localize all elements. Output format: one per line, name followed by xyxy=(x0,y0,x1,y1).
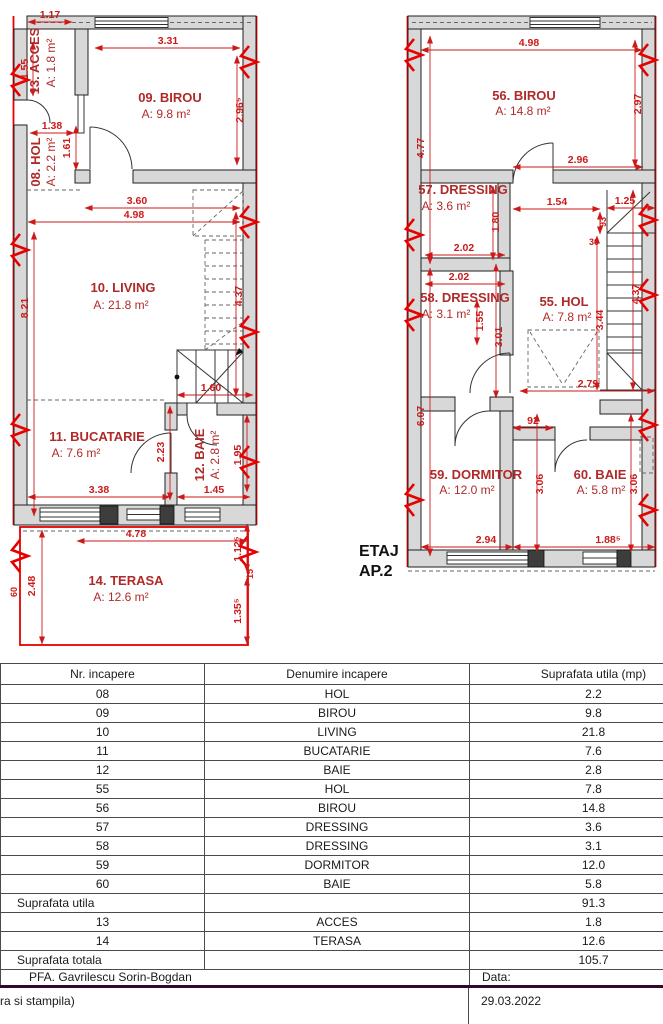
dim-label: 2.02 xyxy=(454,242,475,254)
room-area: A: 5.8 m² xyxy=(577,483,626,497)
dim-label: 1.17 xyxy=(40,9,61,21)
room-area: A: 2.2 m² xyxy=(44,138,58,187)
dim-label: 1.60 xyxy=(201,382,222,394)
room-name: 10. LIVING xyxy=(90,280,155,295)
table-cell: BUCATARIE xyxy=(205,742,470,760)
table-row: Suprafata totala105.7 xyxy=(1,950,663,969)
table-cell: 14 xyxy=(1,932,205,950)
dimension: 2.79 xyxy=(520,378,655,391)
dim-label: 3.06 xyxy=(534,474,546,495)
dimension: 3.60 xyxy=(85,195,240,208)
room-name: 59. DORMITOR xyxy=(430,467,523,482)
dim-label: 30 xyxy=(589,237,599,247)
floor-plans-drawing: ETAJ AP.2 1.171.551.381.613.312.96⁵3.604… xyxy=(0,0,663,660)
table-cell: 13 xyxy=(1,913,205,931)
table-cell: 5.8 xyxy=(470,875,663,893)
dimension: 2.02 xyxy=(425,271,505,284)
table-cell: Suprafata utila xyxy=(1,894,205,912)
table-cell: Suprafata utila (mp) xyxy=(470,664,663,684)
post xyxy=(617,550,631,567)
table-cell: BAIE xyxy=(205,761,470,779)
table-cell: 12 xyxy=(1,761,205,779)
table-row-author: PFA. Gavrilescu Sorin-Bogdan Data: xyxy=(1,969,663,985)
dimension: 4.98 xyxy=(421,37,642,50)
dimension: 2.94 xyxy=(421,534,513,547)
room-area: A: 21.8 m² xyxy=(93,298,148,312)
dimension: 15 xyxy=(245,569,255,579)
dim-label: 3.31 xyxy=(158,35,179,47)
floor-plan-sheet: ETAJ AP.2 1.171.551.381.613.312.96⁵3.604… xyxy=(0,0,663,1024)
room-name: 57. DRESSING xyxy=(418,182,508,197)
dimension-labels: 1.171.551.381.613.312.96⁵3.604.988.214.3… xyxy=(9,9,655,644)
dimension: 1.88⁵ xyxy=(513,534,655,547)
dim-label: 1.38 xyxy=(42,120,63,132)
room-name: 58. DRESSING xyxy=(420,290,510,305)
dim-label: 3.38 xyxy=(89,484,110,496)
dim-label: 4.77 xyxy=(415,138,427,159)
table-cell: 91.3 xyxy=(470,894,663,912)
table-cell: 1.8 xyxy=(470,913,663,931)
room-label: 14. TERASAA: 12.6 m² xyxy=(88,573,164,604)
dim-label: 1.61 xyxy=(61,138,73,159)
room-label: 13. ACCESA: 1.8 m² xyxy=(27,27,58,94)
table-cell: BIROU xyxy=(205,704,470,722)
table-row: 09BIROU9.8 xyxy=(1,703,663,722)
dimension: 30 xyxy=(589,237,599,247)
table-cell: 09 xyxy=(1,704,205,722)
room-area: A: 12.6 m² xyxy=(93,590,148,604)
dim-label: 3.01 xyxy=(493,327,505,348)
room-label: 56. BIROUA: 14.8 m² xyxy=(492,88,556,118)
window xyxy=(40,508,220,521)
table-cell: 105.7 xyxy=(470,951,663,969)
room-area: A: 3.6 m² xyxy=(422,199,471,213)
dim-label: 2.79 xyxy=(578,378,599,390)
dim-label: 2.96⁵ xyxy=(234,97,246,122)
room-name: 55. HOL xyxy=(539,294,588,309)
dim-label: 4.98 xyxy=(124,209,145,221)
date-label: Data: xyxy=(470,970,663,985)
room-name: 11. BUCATARIE xyxy=(49,429,145,444)
table-cell: Nr. incapere xyxy=(1,664,205,684)
dim-label: 2.23 xyxy=(155,442,167,463)
room-label: 10. LIVINGA: 21.8 m² xyxy=(90,280,155,312)
dimension: 1.54 xyxy=(513,196,600,209)
dim-label: 2.48 xyxy=(26,576,38,597)
dimension: 3.38 xyxy=(28,484,170,497)
area-table: Nr. incapereDenumire incapereSuprafata u… xyxy=(0,663,663,985)
table-cell xyxy=(205,894,470,912)
dimension: 1.45 xyxy=(177,484,250,497)
post xyxy=(160,506,174,524)
table-cell: ACCES xyxy=(205,913,470,931)
room-area: A: 1.8 m² xyxy=(44,39,58,88)
table-row: 59DORMITOR12.0 xyxy=(1,855,663,874)
date-value: 29.03.2022 xyxy=(469,988,663,1024)
room-name: 08. HOL xyxy=(28,137,43,186)
table-row: 12BAIE2.8 xyxy=(1,760,663,779)
dim-label: 1.35⁵ xyxy=(232,598,244,623)
dim-label: 3.44 xyxy=(594,310,606,331)
room-area: A: 7.6 m² xyxy=(52,446,101,460)
table-row: Suprafata utila91.3 xyxy=(1,893,663,912)
room-area: A: 7.8 m² xyxy=(543,310,592,324)
table-cell: LIVING xyxy=(205,723,470,741)
table-cell: 2.2 xyxy=(470,685,663,703)
table-cell: 55 xyxy=(1,780,205,798)
post xyxy=(100,506,118,524)
table-cell: DORMITOR xyxy=(205,856,470,874)
post xyxy=(528,550,544,567)
dimension: 2.48 xyxy=(26,530,42,644)
dim-label: 1.80 xyxy=(490,212,502,233)
table-cell: 14.8 xyxy=(470,799,663,817)
table-row: 13ACCES1.8 xyxy=(1,912,663,931)
table-row: 55HOL7.8 xyxy=(1,779,663,798)
table-cell: DRESSING xyxy=(205,818,470,836)
table-cell: BIROU xyxy=(205,799,470,817)
table-row: 11BUCATARIE7.6 xyxy=(1,741,663,760)
table-row: 08HOL2.2 xyxy=(1,684,663,703)
dim-label: 4.78 xyxy=(126,528,147,540)
room-label: 60. BAIEA: 5.8 m² xyxy=(574,467,627,497)
table-cell: 12.0 xyxy=(470,856,663,874)
dim-label: 2.96 xyxy=(568,154,589,166)
dim-label: 4.98 xyxy=(519,37,540,49)
plan-caption-line1: ETAJ xyxy=(359,543,399,560)
dim-label: 2.02 xyxy=(449,271,470,283)
table-row: 57DRESSING3.6 xyxy=(1,817,663,836)
dim-label: 1.12⁵ xyxy=(232,536,244,561)
room-area: A: 3.1 m² xyxy=(422,307,471,321)
room-area: A: 2.8 m² xyxy=(208,431,222,480)
dim-label: 1.25 xyxy=(615,195,636,207)
dimension: 1.35⁵ xyxy=(232,578,247,644)
dim-label: 1.54 xyxy=(547,196,568,208)
table-cell: 08 xyxy=(1,685,205,703)
room-label: 57. DRESSINGA: 3.6 m² xyxy=(418,182,508,213)
table-cell: 9.8 xyxy=(470,704,663,722)
signature-row: ra si stampila) 29.03.2022 xyxy=(0,988,663,1024)
table-cell: 60 xyxy=(1,875,205,893)
room-area: A: 9.8 m² xyxy=(142,107,191,121)
table-cell: 2.8 xyxy=(470,761,663,779)
table-cell: Suprafata totala xyxy=(1,951,205,969)
dimension: 2.96 xyxy=(513,154,643,167)
room-area: A: 12.0 m² xyxy=(439,483,494,497)
dim-label: 3.06 xyxy=(628,474,640,495)
dimension: 92 xyxy=(513,415,553,428)
dim-label: 15 xyxy=(245,569,255,579)
room-label: 12. BAIEA: 2.8 m² xyxy=(192,428,222,481)
table-cell: 10 xyxy=(1,723,205,741)
dimension: 1.55 xyxy=(474,300,486,345)
table-cell: 7.6 xyxy=(470,742,663,760)
table-cell: Denumire incapere xyxy=(205,664,470,684)
dim-label: 4.37 xyxy=(233,286,245,307)
table-cell: DRESSING xyxy=(205,837,470,855)
table-row: Nr. incapereDenumire incapereSuprafata u… xyxy=(1,663,663,684)
dimension: 4.98 xyxy=(28,209,240,222)
dim-label: 1.88⁵ xyxy=(595,534,620,546)
room-area: A: 14.8 m² xyxy=(495,104,550,118)
author-name: PFA. Gavrilescu Sorin-Bogdan xyxy=(1,970,470,985)
room-name: 13. ACCES xyxy=(27,27,42,94)
dim-label: 6.07 xyxy=(415,406,427,427)
room-label: 55. HOLA: 7.8 m² xyxy=(539,294,591,324)
dimension: 3.44 xyxy=(594,236,606,390)
table-cell: 3.6 xyxy=(470,818,663,836)
room-name: 56. BIROU xyxy=(492,88,556,103)
room-label: 08. HOLA: 2.2 m² xyxy=(28,137,58,186)
window xyxy=(530,18,600,28)
dim-label: 93 xyxy=(598,217,608,227)
table-cell: 21.8 xyxy=(470,723,663,741)
table-cell: 59 xyxy=(1,856,205,874)
table-cell: 12.6 xyxy=(470,932,663,950)
table-cell: BAIE xyxy=(205,875,470,893)
dim-label: 2.97 xyxy=(632,94,644,115)
stamp-note: ra si stampila) xyxy=(0,988,469,1024)
table-row: 10LIVING21.8 xyxy=(1,722,663,741)
room-name: 60. BAIE xyxy=(574,467,627,482)
table-cell: 57 xyxy=(1,818,205,836)
dim-label: 60 xyxy=(9,587,19,597)
room-name: 14. TERASA xyxy=(88,573,164,588)
table-cell: 3.1 xyxy=(470,837,663,855)
window xyxy=(95,18,168,28)
table-row: 56BIROU14.8 xyxy=(1,798,663,817)
dimension: 4.37 xyxy=(630,190,642,390)
table-cell: TERASA xyxy=(205,932,470,950)
table-row: 60BAIE5.8 xyxy=(1,874,663,893)
dim-label: 4.37 xyxy=(630,284,642,305)
table-row: 58DRESSING3.1 xyxy=(1,836,663,855)
dimension: 1.38 xyxy=(30,120,74,133)
floor-plan-left xyxy=(12,16,257,645)
dim-label: 8.21 xyxy=(19,298,31,319)
table-cell xyxy=(205,951,470,969)
table-cell: 58 xyxy=(1,837,205,855)
room-name: 12. BAIE xyxy=(192,428,207,481)
plan-caption-line2: AP.2 xyxy=(359,563,393,580)
room-name: 09. BIROU xyxy=(138,90,202,105)
table-cell: 7.8 xyxy=(470,780,663,798)
dim-label: 1.95 xyxy=(232,445,244,466)
dim-label: 1.55 xyxy=(474,311,486,332)
dim-label: 3.60 xyxy=(127,195,148,207)
table-row: 14TERASA12.6 xyxy=(1,931,663,950)
dimension: 4.78 xyxy=(77,528,247,541)
dim-label: 2.94 xyxy=(476,534,497,546)
dimension: 3.31 xyxy=(95,35,240,48)
room-label: 09. BIROUA: 9.8 m² xyxy=(138,90,202,121)
dimension: 60 xyxy=(9,587,19,597)
table-cell: HOL xyxy=(205,780,470,798)
table-cell: 11 xyxy=(1,742,205,760)
room-label: 11. BUCATARIEA: 7.6 m² xyxy=(49,429,145,460)
dim-label: 1.45 xyxy=(204,484,225,496)
dimension: 1.60 xyxy=(177,382,253,395)
table-cell: HOL xyxy=(205,685,470,703)
table-cell: 56 xyxy=(1,799,205,817)
